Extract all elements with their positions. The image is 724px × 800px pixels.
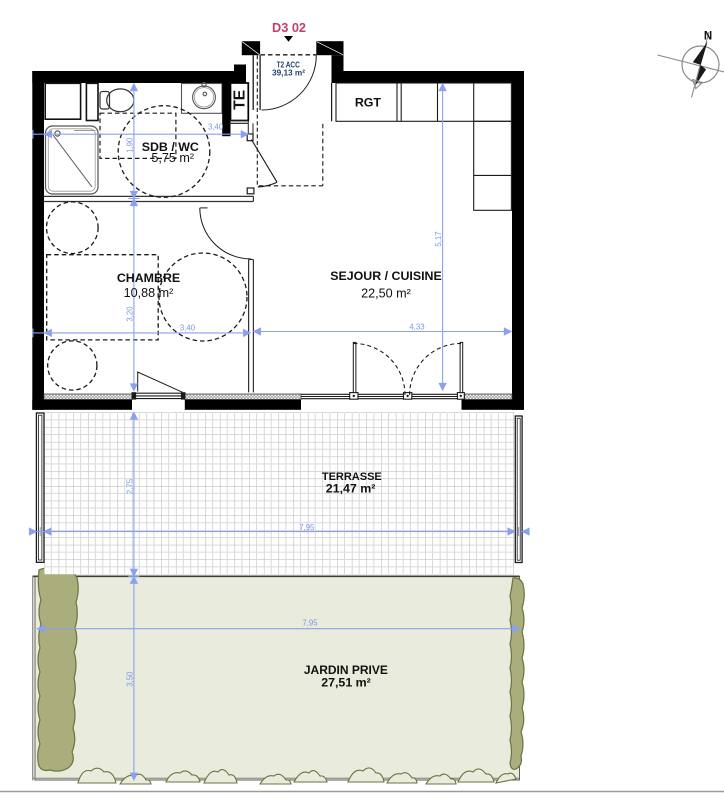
svg-text:27,51 m²: 27,51 m² xyxy=(321,676,371,690)
svg-text:7,95: 7,95 xyxy=(299,522,314,532)
svg-text:RGT: RGT xyxy=(355,96,382,110)
svg-text:N: N xyxy=(704,30,712,42)
svg-text:CHAMBRE: CHAMBRE xyxy=(117,271,180,285)
svg-text:7,95: 7,95 xyxy=(302,618,317,628)
svg-text:3,20: 3,20 xyxy=(124,306,134,321)
svg-text:39,13 m²: 39,13 m² xyxy=(272,68,305,78)
svg-text:5,75 m²: 5,75 m² xyxy=(151,151,194,165)
svg-text:21,47 m²: 21,47 m² xyxy=(326,482,376,496)
svg-text:22,50 m²: 22,50 m² xyxy=(361,286,411,300)
svg-text:3,50: 3,50 xyxy=(124,671,134,686)
svg-text:2,75: 2,75 xyxy=(124,479,134,494)
svg-text:TE: TE xyxy=(231,90,248,110)
svg-text:3,40: 3,40 xyxy=(180,323,195,333)
svg-text:SEJOUR / CUISINE: SEJOUR / CUISINE xyxy=(330,269,442,283)
svg-text:1,90: 1,90 xyxy=(124,138,134,153)
svg-text:D3 02: D3 02 xyxy=(272,20,306,35)
svg-text:3,40: 3,40 xyxy=(208,122,223,132)
svg-text:5,17: 5,17 xyxy=(433,231,443,246)
svg-text:10,88 m²: 10,88 m² xyxy=(124,286,174,300)
svg-text:4,33: 4,33 xyxy=(409,322,424,332)
